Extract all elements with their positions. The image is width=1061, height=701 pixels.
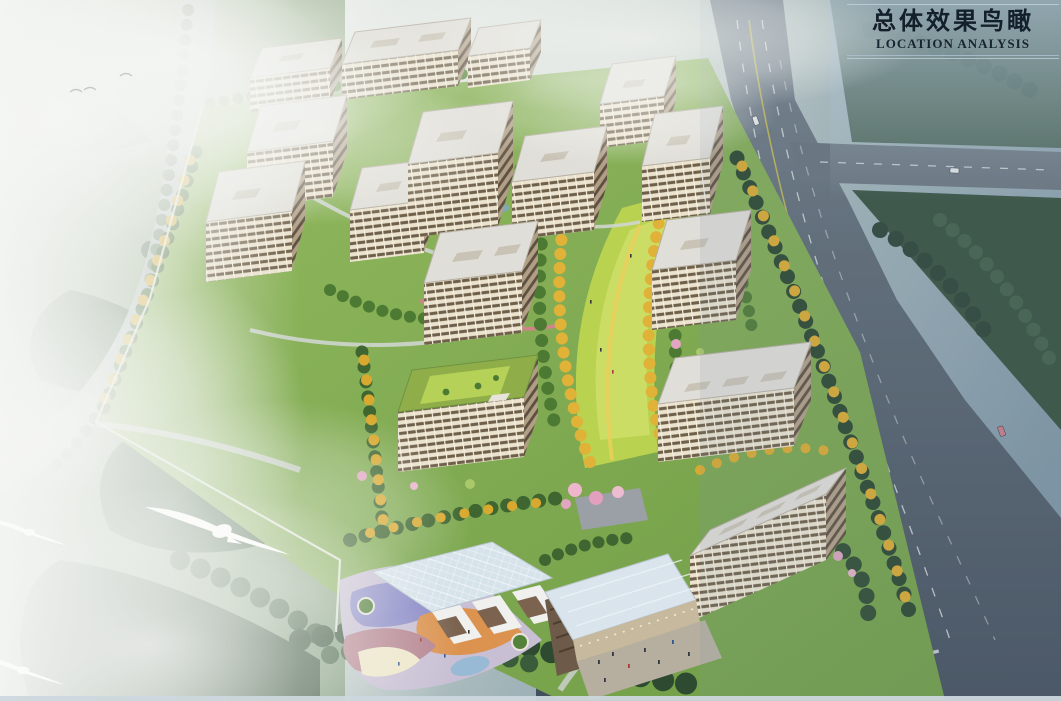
title-block: 总体效果鸟瞰 LOCATION ANALYSIS — [845, 0, 1061, 59]
divider-line — [847, 58, 1059, 59]
divider-line — [847, 55, 1059, 56]
page-title: 总体效果鸟瞰 — [845, 10, 1061, 35]
divider-line — [847, 4, 1059, 5]
aerial-rendering: 总体效果鸟瞰 LOCATION ANALYSIS — [0, 0, 1061, 701]
residential-tower-10 — [424, 221, 538, 345]
bottom-border — [0, 696, 1061, 701]
page-subtitle: LOCATION ANALYSIS — [845, 36, 1061, 52]
